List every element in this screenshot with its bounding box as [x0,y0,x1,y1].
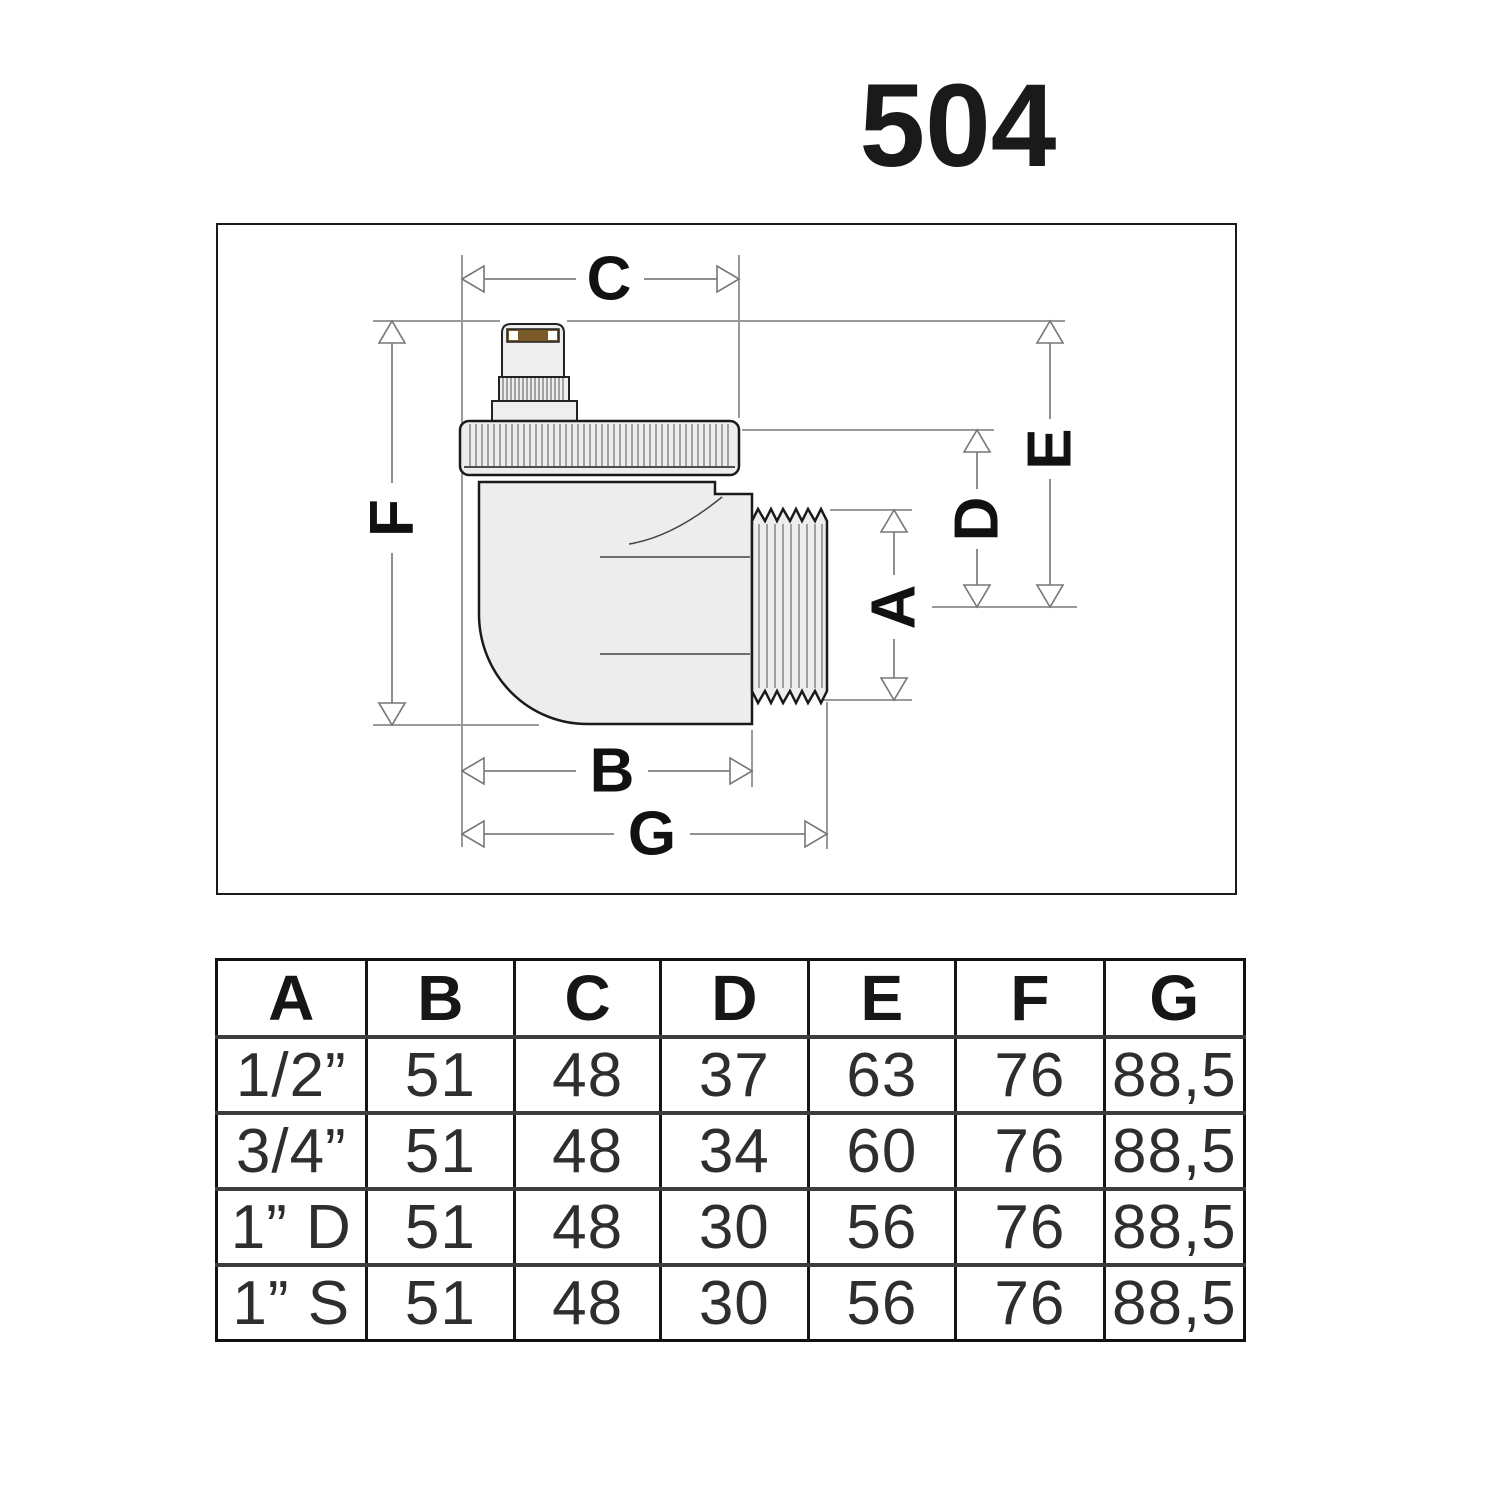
table-cell: 48 [515,1037,661,1113]
table-cell: 1/2” [217,1037,367,1113]
table-cell: 88,5 [1104,1265,1244,1341]
dim-label-d: D [943,497,1012,542]
header-cell-f: F [956,960,1105,1038]
vent-cap-slot-notch-left [509,331,518,340]
table-cell: 51 [366,1265,515,1341]
table-cell: 30 [661,1265,809,1341]
dimensions-table: A B C D E F G 1/2” 51 48 37 63 76 88,5 3… [215,958,1246,1342]
header-cell-e: E [808,960,956,1038]
table-cell: 76 [956,1037,1105,1113]
product-code: 504 [758,58,1158,194]
table-cell: 63 [808,1037,956,1113]
technical-drawing-box: C F E [216,223,1237,895]
table-cell: 48 [515,1113,661,1189]
table-cell: 56 [808,1189,956,1265]
table-cell: 51 [366,1037,515,1113]
dimension-d: D [943,430,1012,607]
vent-neck [492,401,577,421]
page: 504 [0,0,1500,1500]
table-cell: 76 [956,1113,1105,1189]
header-cell-d: D [661,960,809,1038]
dimension-c: C [462,245,739,314]
knurled-cap [460,421,739,475]
table-row: 3/4” 51 48 34 60 76 88,5 [217,1113,1245,1189]
dimension-f: F [358,321,427,725]
table-cell: 88,5 [1104,1189,1244,1265]
table-cell: 30 [661,1189,809,1265]
header-cell-c: C [515,960,661,1038]
table-row: 1/2” 51 48 37 63 76 88,5 [217,1037,1245,1113]
dimension-a: A [860,510,929,700]
valve-diagram: C F E [218,225,1235,893]
valve-drawing [460,324,827,724]
dim-label-g: G [628,800,676,869]
valve-body [479,482,752,724]
dimension-e: E [1016,321,1085,607]
table-cell: 76 [956,1265,1105,1341]
dim-label-f: F [358,499,427,537]
table-row: 1” S 51 48 30 56 76 88,5 [217,1265,1245,1341]
dimension-b: B [462,737,752,806]
table-header-row: A B C D E F G [217,960,1245,1038]
table-cell: 3/4” [217,1113,367,1189]
table-cell: 48 [515,1189,661,1265]
table-cell: 88,5 [1104,1037,1244,1113]
dimension-g: G [462,800,827,869]
dim-label-c: C [587,245,632,314]
table-cell: 76 [956,1189,1105,1265]
table-row: 1” D 51 48 30 56 76 88,5 [217,1189,1245,1265]
table-cell: 48 [515,1265,661,1341]
table-cell: 51 [366,1113,515,1189]
table-cell: 88,5 [1104,1113,1244,1189]
header-cell-g: G [1104,960,1244,1038]
vent-knurled-ring [499,377,569,401]
table-cell: 34 [661,1113,809,1189]
dim-label-b: B [590,737,635,806]
table-cell: 60 [808,1113,956,1189]
table-cell: 1” S [217,1265,367,1341]
dim-label-e: E [1016,428,1085,469]
dim-label-a: A [860,585,929,630]
threaded-connection [752,509,827,703]
header-cell-b: B [366,960,515,1038]
header-cell-a: A [217,960,367,1038]
table-cell: 56 [808,1265,956,1341]
table-cell: 51 [366,1189,515,1265]
table-cell: 37 [661,1037,809,1113]
table-cell: 1” D [217,1189,367,1265]
vent-cap-slot-notch-right [548,331,557,340]
